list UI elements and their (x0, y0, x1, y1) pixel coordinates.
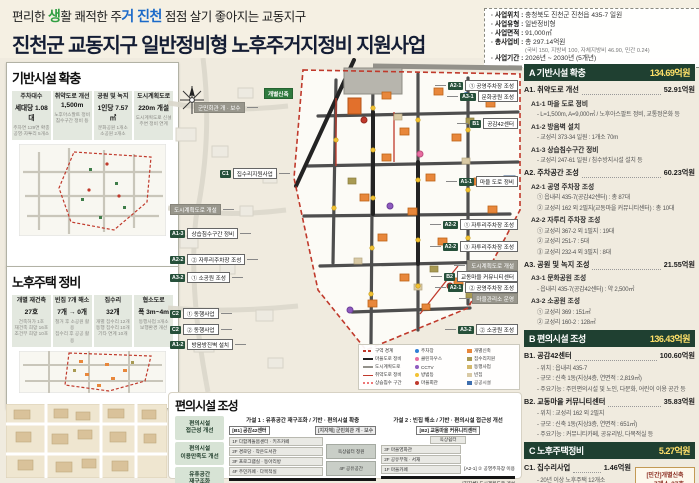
hypothesis-2: 가설 2 : 빈집 해소 / 기반 · 편의시설 접근성 개선 [B2] 교동마… (381, 416, 515, 483)
info-row: · 사업유형 : 일반정비형 (491, 21, 697, 30)
panel-old-housing: 노후주택 정비 개별 재건축27호건축허가 1호 재건축 희망 16호 조건부 … (6, 266, 179, 409)
plan-road-line-icon (363, 366, 373, 368)
lamp-point-icon (415, 373, 419, 377)
panel-infrastructure: 기반시설 확충 주차대수세대당 1.08대주차면 129면 확충 공영·자투리 … (6, 62, 179, 267)
b1-building-tag: [B1] 공감42센터 (229, 426, 269, 435)
map-callout: A2-2② 자투리주차장 조성 (170, 254, 258, 265)
stat-empty-house: 빈집 7개 해소7개 → 0개철거 후 소공원 활용 집수리 후 공공 활용 (53, 295, 92, 347)
public-area-icon (467, 381, 472, 385)
ground-line (229, 478, 376, 481)
map-callout: 개별신축 (264, 88, 293, 99)
cleanhouse-point-icon (415, 357, 419, 361)
hypothesis-1: 가설 1 : 유휴공간 재구조화 / 기반 · 편의시설 확충 [B1] 공감4… (229, 416, 376, 483)
b2-floor-stack: 3F 마을영화관 2F 공유부엌 · 서재 1F 마을카페 (381, 444, 461, 474)
together-area-icon (467, 365, 472, 369)
goal-restructure: 유휴공간 재구조화 (175, 467, 224, 483)
stat-rebuild: 개별 재건축27호건축허가 1호 재건축 희망 16호 조건부 희망 10호 (12, 295, 51, 347)
map-callout: C2② 동행사업 (170, 324, 232, 335)
legend-lines-column: 구역 경계 마을도로 정비 도시계획도로 취약도로 정비 상습침수 구간 (363, 348, 411, 386)
panel-infra-title: 기반시설 확충 (12, 68, 173, 87)
section-c-body: C1. 집수리사업1.46억원 - 20년 이상 노후주택 12개소 C2. 동… (524, 463, 695, 483)
panel-old-title: 노후주택 정비 (12, 272, 173, 291)
map-callout: A1-3상습침수구간 정비 (170, 228, 251, 239)
subtitle-highlight-blue: 거 진천 (121, 8, 162, 24)
subtitle-highlight-green: 생 (48, 8, 60, 24)
header: 편리한 생활 쾌적한 주거 진천 점점 살기 좋아지는 교동지구 진천군 교동지… (12, 6, 482, 58)
info-row: · 사업위치 : 충청북도 진천군 진천읍 435-7 일원 (491, 12, 697, 21)
project-detail-column: A 기반시설 확충134.69억원 A1. 취약도로 개선52.91억원 A1-… (524, 60, 695, 483)
cost-breakdown-note: (국비 150, 지방비 100, 자체지방비 46.90, 민간 0.24) (525, 48, 697, 56)
stat-roads: 취약도로 개선1,500m노후아스팔트 정비 침수구간 정비 등 (53, 91, 92, 140)
map-callout: 군민회관 개 · 보수 (194, 102, 258, 113)
village-road-line-icon (363, 358, 373, 360)
area-map-thumbnail (6, 404, 167, 478)
map-callout: A2-1① 공영주차장 조성 (435, 80, 518, 91)
poster-page: 편리한 생활 쾌적한 주거 진천 점점 살기 좋아지는 교동지구 진천군 교동지… (0, 0, 699, 483)
cctv-point-icon (415, 365, 419, 369)
stat-parking: 주차대수세대당 1.08대주차면 129면 확충 공영·자투리 5개소 (12, 91, 51, 140)
info-row: · 총사업비 : 총 297.14억원 (491, 39, 697, 48)
map-callout: B1공감42센터 (457, 118, 518, 129)
map-callout: C1집수리지원사업 (220, 168, 290, 179)
map-callout: A3-2② 소공원 조성 (445, 324, 518, 335)
weak-road-line-icon (363, 375, 373, 376)
header-subtitle: 편리한 생활 쾌적한 주거 진천 점점 살기 좋아지는 교동지구 (12, 6, 482, 26)
infra-stats: 주차대수세대당 1.08대주차면 129면 확충 공영·자투리 5개소 취약도로… (12, 91, 173, 140)
map-legend: 구역 경계 마을도로 정비 도시계획도로 취약도로 정비 상습침수 구간 주차장… (358, 344, 520, 390)
legend-areas-column: 개별신축 집수리지원 동행사업 빈집 공공시설 (467, 348, 515, 386)
parking-point-icon (415, 349, 419, 353)
old-housing-stats: 개별 재건축27호건축허가 1호 재건축 희망 16호 조건부 희망 10호 빈… (12, 295, 173, 347)
b1-floor-stack: 1F 다함께돌봄센터 · 키즈카페 2F 경로당 · 작은도서관 3F 프로그램… (229, 436, 323, 476)
page-title: 진천군 교동지구 일반정비형 노후주거지정비 지원사업 (12, 29, 482, 58)
map-callout: A1-2방음방진벽 설치 (170, 339, 246, 350)
map-callout: A2-2① 자투리주차장 조성 (430, 219, 518, 230)
boundary-line-icon (363, 350, 373, 352)
goal-satisfaction: 편의시설 이용만족도 개선 (175, 442, 224, 466)
hyp2-right-label: [A2-1] ② 공영주차장 이용 (464, 466, 515, 472)
flood-zone-line-icon (363, 382, 373, 384)
map-callout: A2-2③ 자투리주차장 조성 (430, 241, 518, 252)
minimap-old-housing (19, 351, 166, 393)
map-callout: B2교동마을 커뮤니티센터 (431, 271, 518, 282)
roof-rest-box: 옥상쉼터 (430, 436, 466, 444)
facility-panel: 편의시설 조성 편의시설 접근성 개선 편의시설 이용만족도 개선 유휴공간 재… (168, 392, 522, 479)
newbuild-area-icon (467, 349, 472, 353)
facility-title: 편의시설 조성 (175, 397, 515, 414)
map-callout: A3-1문화공원 조성 (447, 91, 518, 102)
map-callout: A1-1마을 도로 정비 (446, 176, 518, 187)
section-a-header: A 기반시설 확충134.69억원 (524, 64, 695, 81)
linked-project-tag: [지자체] 군민회관 개 · 보수 (315, 426, 376, 435)
goal-accessibility: 편의시설 접근성 개선 (175, 416, 224, 440)
repair-area-icon (467, 357, 472, 361)
private-newbuild-box: [민간]개별신축 → 7개소 27호 단독 1개 : 건축허가 단독 3개 : … (635, 467, 695, 483)
map-callout: C2① 동행사업 (170, 308, 232, 319)
map-callout: A3-2① 소공원 조성 (170, 272, 243, 283)
map-callout: A2-1② 공영주차장 조성 (435, 282, 518, 293)
section-b-header: B 편의시설 조성136.43억원 (524, 330, 695, 347)
minimap-infrastructure (19, 144, 166, 236)
stat-parks: 공원 및 녹지1인당 7.57㎡문화공원 1개소 소공원 2개소 (94, 91, 133, 140)
info-row: · 사업면적 : 91,000㎡ (491, 30, 697, 39)
emptyhouse-area-icon (467, 373, 472, 377)
map-callout: 도시계획도로 개설 (170, 204, 234, 215)
district-map-area: 군민회관 개 · 보수 개별신축 C1집수리지원사업 도시계획도로 개설 A1-… (168, 58, 522, 392)
section-c-header: C 노후주택정비5.27억원 (524, 442, 695, 459)
legend-points-column: 주차장 클린하우스 CCTV 방범등 마을회관 (415, 348, 463, 386)
hall-point-icon (415, 381, 419, 385)
stat-repair: 집수리32개개별 집수리 12개 동행 집수리 10개 기타 연계 10개 (94, 295, 133, 347)
map-callout: 도시계획도로 개설 (454, 260, 518, 271)
map-callout: 마을관리소 운영 (459, 293, 518, 304)
b1-side-boxes: 옥상쉼터 정원 4F 공유공간 (326, 436, 376, 476)
ground-line (381, 476, 515, 479)
b2-building-tag: [B2] 교동마을 커뮤니티센터 (416, 426, 479, 435)
facility-goals: 편의시설 접근성 개선 편의시설 이용만족도 개선 유휴공간 재구조화 (175, 416, 224, 483)
